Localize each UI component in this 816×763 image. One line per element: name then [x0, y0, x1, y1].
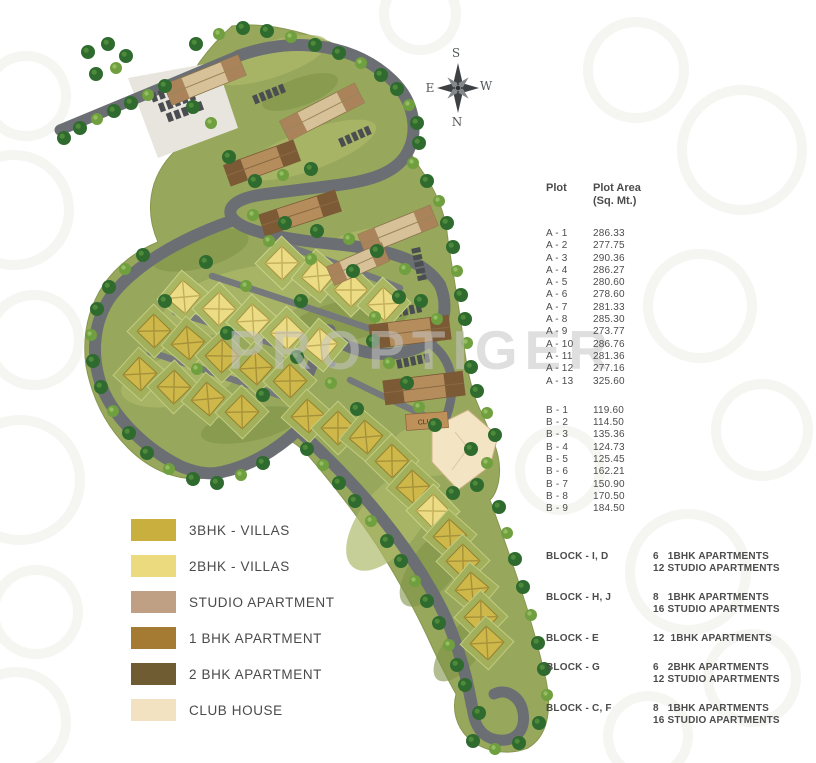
plot-row: B - 9 184.50 — [546, 503, 796, 515]
plot-id: A - 13 — [546, 376, 593, 388]
plot-row: B - 4 124.73 — [546, 442, 796, 454]
color-legend: 3BHK - VILLAS 2BHK - VILLAS STUDIO APART… — [131, 519, 335, 735]
plot-id: B - 2 — [546, 417, 593, 429]
legend-swatch — [131, 555, 176, 577]
legend-label: CLUB HOUSE — [189, 703, 283, 718]
plot-id: B - 6 — [546, 466, 593, 478]
block-units: 8 1BHK APARTMENTS 16 STUDIO APARTMENTS — [653, 703, 780, 727]
plot-area-value: 119.60 — [593, 405, 624, 417]
plot-id: A - 9 — [546, 326, 593, 338]
block-units: 6 1BHK APARTMENTS 12 STUDIO APARTMENTS — [653, 551, 780, 575]
plot-column-header: Plot — [546, 182, 593, 208]
compass: S E W N — [426, 46, 493, 129]
compass-right-label: W — [480, 79, 493, 93]
plot-row: A - 5 280.60 — [546, 277, 796, 289]
legend-row: 3BHK - VILLAS — [131, 519, 335, 541]
plot-area-value: 277.75 — [593, 240, 625, 252]
plot-row: A - 11 281.36 — [546, 351, 796, 363]
plot-id: A - 10 — [546, 339, 593, 351]
plot-row: A - 7 281.33 — [546, 302, 796, 314]
site-plan-page: CLUB — [0, 0, 816, 763]
compass-left-label: E — [426, 81, 435, 95]
plot-row: B - 2 114.50 — [546, 417, 796, 429]
plot-area-value: 135.36 — [593, 429, 625, 441]
plot-area-value: 286.27 — [593, 265, 625, 277]
block-units: 6 2BHK APARTMENTS 12 STUDIO APARTMENTS — [653, 662, 780, 686]
legend-row: CLUB HOUSE — [131, 699, 335, 721]
block-row: BLOCK - E 12 1BHK APARTMENTS — [546, 633, 816, 645]
plot-id: B - 5 — [546, 454, 593, 466]
plot-row: B - 3 135.36 — [546, 429, 796, 441]
legend-label: 3BHK - VILLAS — [189, 523, 290, 538]
block-row: BLOCK - G 6 2BHK APARTMENTS 12 STUDIO AP… — [546, 662, 816, 686]
plot-group-a: A - 1 286.33 A - 2 277.75 A - 3 290.36 A… — [546, 228, 796, 388]
plot-area-value: 273.77 — [593, 326, 625, 338]
plot-row: A - 10 286.76 — [546, 339, 796, 351]
plot-area-value: 281.33 — [593, 302, 625, 314]
plot-area-value: 184.50 — [593, 503, 625, 515]
block-units: 8 1BHK APARTMENTS 16 STUDIO APARTMENTS — [653, 592, 780, 616]
plot-area-value: 124.73 — [593, 442, 625, 454]
plot-row: B - 8 170.50 — [546, 491, 796, 503]
plot-area-value: 286.33 — [593, 228, 625, 240]
block-label: BLOCK - C, F — [546, 703, 653, 727]
legend-swatch — [131, 663, 176, 685]
plot-area-table: Plot Plot Area (Sq. Mt.) A - 1 286.33 A … — [546, 182, 796, 516]
plot-area-column-header: Plot Area (Sq. Mt.) — [593, 182, 641, 208]
legend-label: STUDIO APARTMENT — [189, 595, 335, 610]
plot-row: B - 6 162.21 — [546, 466, 796, 478]
block-units: 12 1BHK APARTMENTS — [653, 633, 772, 645]
plot-area-value: 150.90 — [593, 479, 625, 491]
block-label: BLOCK - I, D — [546, 551, 653, 575]
plot-id: A - 8 — [546, 314, 593, 326]
block-label: BLOCK - H, J — [546, 592, 653, 616]
block-row: BLOCK - H, J 8 1BHK APARTMENTS 16 STUDIO… — [546, 592, 816, 616]
plot-area-value: 125.45 — [593, 454, 625, 466]
block-row: BLOCK - C, F 8 1BHK APARTMENTS 16 STUDIO… — [546, 703, 816, 727]
compass-top-label: S — [452, 46, 460, 60]
legend-swatch — [131, 519, 176, 541]
block-row: BLOCK - I, D 6 1BHK APARTMENTS 12 STUDIO… — [546, 551, 816, 575]
plot-table-header: Plot Plot Area (Sq. Mt.) — [546, 182, 796, 208]
plot-area-value: 285.30 — [593, 314, 625, 326]
plot-area-value: 114.50 — [593, 417, 624, 429]
legend-swatch — [131, 627, 176, 649]
plot-row: A - 6 278.60 — [546, 289, 796, 301]
plot-id: B - 9 — [546, 503, 593, 515]
plot-id: A - 3 — [546, 253, 593, 265]
plot-area-value: 281.36 — [593, 351, 625, 363]
legend-label: 1 BHK APARTMENT — [189, 631, 322, 646]
plot-group-b: B - 1 119.60 B - 2 114.50 B - 3 135.36 B… — [546, 405, 796, 516]
plot-area-value: 325.60 — [593, 376, 625, 388]
plot-id: B - 4 — [546, 442, 593, 454]
plot-id: A - 5 — [546, 277, 593, 289]
plot-area-value: 290.36 — [593, 253, 625, 265]
legend-swatch — [131, 591, 176, 613]
plot-row: B - 5 125.45 — [546, 454, 796, 466]
plot-area-value: 280.60 — [593, 277, 625, 289]
plot-row: A - 2 277.75 — [546, 240, 796, 252]
block-summary: BLOCK - I, D 6 1BHK APARTMENTS 12 STUDIO… — [546, 551, 816, 744]
plot-id: B - 8 — [546, 491, 593, 503]
plot-row: A - 12 277.16 — [546, 363, 796, 375]
plot-id: A - 1 — [546, 228, 593, 240]
block-label: BLOCK - G — [546, 662, 653, 686]
plot-row: A - 13 325.60 — [546, 376, 796, 388]
legend-row: 1 BHK APARTMENT — [131, 627, 335, 649]
legend-row: STUDIO APARTMENT — [131, 591, 335, 613]
legend-row: 2BHK - VILLAS — [131, 555, 335, 577]
plot-id: A - 2 — [546, 240, 593, 252]
plot-area-value: 277.16 — [593, 363, 625, 375]
plot-area-value: 278.60 — [593, 289, 625, 301]
plot-area-value: 162.21 — [593, 466, 625, 478]
plot-row: B - 7 150.90 — [546, 479, 796, 491]
legend-label: 2BHK - VILLAS — [189, 559, 290, 574]
plot-row: A - 9 273.77 — [546, 326, 796, 338]
plot-row: A - 1 286.33 — [546, 228, 796, 240]
plot-id: A - 4 — [546, 265, 593, 277]
plot-row: A - 3 290.36 — [546, 253, 796, 265]
legend-row: 2 BHK APARTMENT — [131, 663, 335, 685]
legend-label: 2 BHK APARTMENT — [189, 667, 322, 682]
plot-id: A - 11 — [546, 351, 593, 363]
plot-id: A - 6 — [546, 289, 593, 301]
plot-row: A - 8 285.30 — [546, 314, 796, 326]
plot-row: A - 4 286.27 — [546, 265, 796, 277]
plot-id: B - 7 — [546, 479, 593, 491]
plot-id: A - 12 — [546, 363, 593, 375]
plot-id: A - 7 — [546, 302, 593, 314]
plot-row: B - 1 119.60 — [546, 405, 796, 417]
plot-area-value: 286.76 — [593, 339, 625, 351]
compass-bottom-label: N — [452, 115, 463, 129]
plot-area-value: 170.50 — [593, 491, 625, 503]
plot-id: B - 1 — [546, 405, 593, 417]
block-label: BLOCK - E — [546, 633, 653, 645]
plot-id: B - 3 — [546, 429, 593, 441]
legend-swatch — [131, 699, 176, 721]
